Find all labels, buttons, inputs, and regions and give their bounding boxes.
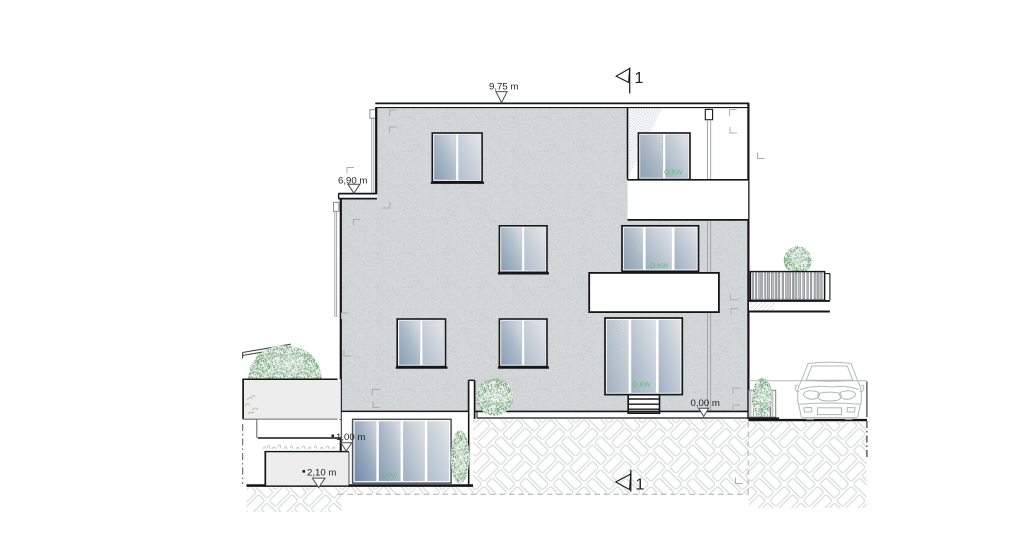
svg-text:2,10 m: 2,10 m xyxy=(307,468,336,479)
svg-text:O.KW: O.KW xyxy=(664,170,683,177)
svg-text:O.KW: O.KW xyxy=(379,473,398,480)
svg-text:0,00 m: 0,00 m xyxy=(691,398,720,409)
svg-text:1,00 m: 1,00 m xyxy=(336,432,365,443)
svg-text:O.KW: O.KW xyxy=(632,382,651,389)
svg-text:O.KW: O.KW xyxy=(650,263,669,270)
svg-text:1: 1 xyxy=(636,477,645,494)
svg-text:9,75 m: 9,75 m xyxy=(489,82,518,93)
svg-text:1: 1 xyxy=(635,70,644,87)
